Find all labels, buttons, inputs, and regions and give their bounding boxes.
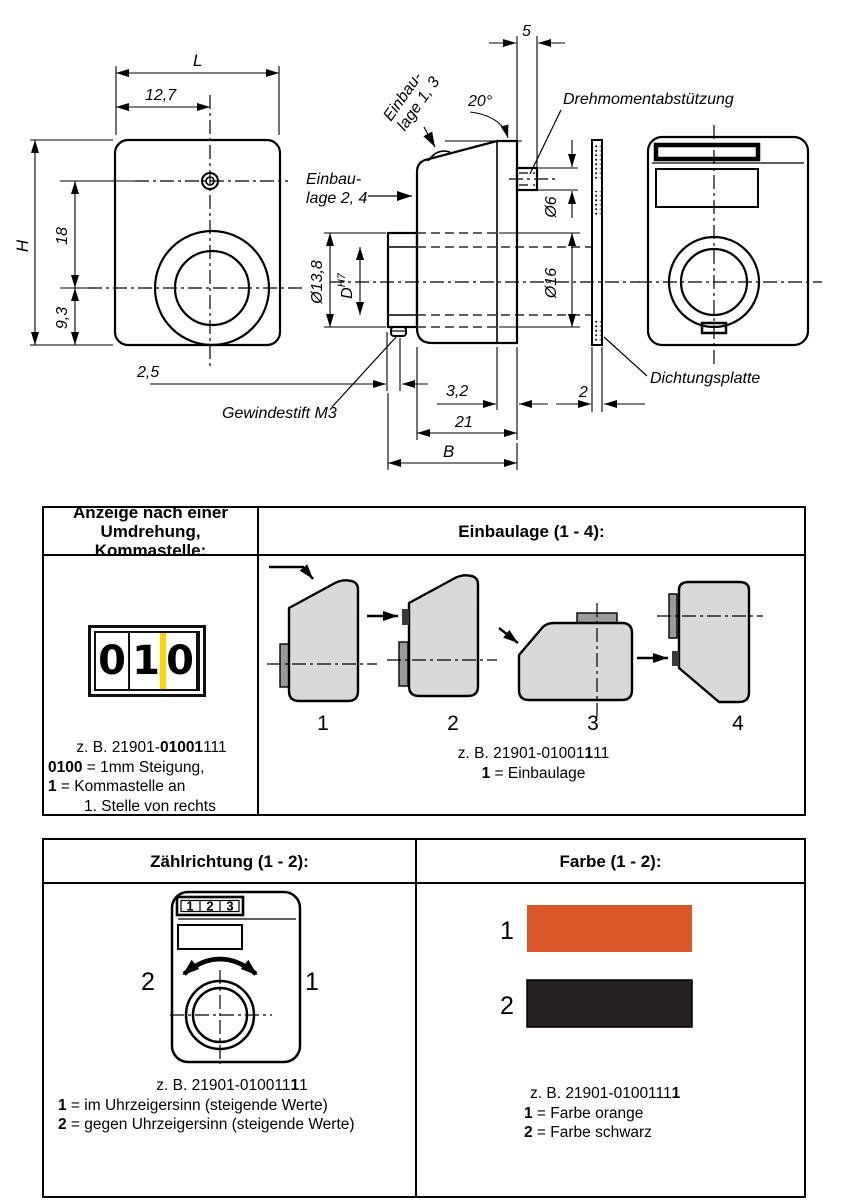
dim-2: 2 xyxy=(578,384,588,401)
dim-o6: Ø6 xyxy=(543,196,560,218)
dim-H: H xyxy=(13,239,32,252)
swatch-black xyxy=(527,980,692,1027)
direction-2: 2 xyxy=(141,968,155,996)
counter-digit: 1 xyxy=(130,633,164,689)
einbaulage-figures: 1 2 3 xyxy=(261,558,806,742)
zaehlrichtung-example-caption: z. B. 21901-01001111 1 = im Uhrzeigersin… xyxy=(58,1076,406,1135)
display-digit: 1 xyxy=(186,899,193,914)
cell-zaehlrichtung: 1 2 3 2 1 z. B. 21901-01001111 1 = im Uh… xyxy=(44,884,417,1196)
figure-position-4: 4 xyxy=(637,582,763,735)
svg-text:1: 1 xyxy=(317,712,329,735)
dim-21: 21 xyxy=(454,414,473,431)
front-view: L 12,7 H 18 9,3 xyxy=(13,51,304,368)
dim-o16: Ø16 xyxy=(543,268,560,299)
device-label-window xyxy=(178,925,242,949)
cell-anzeige: 0 1 0 z. B. 21901-01001111 0100 = 1mm St… xyxy=(44,556,259,814)
front-knob-inner xyxy=(175,251,249,325)
counter-digit: 0 xyxy=(164,633,198,689)
swatch-orange xyxy=(527,905,692,952)
dim-B: B xyxy=(443,442,454,461)
rear-view xyxy=(638,125,822,365)
dim-20deg: 20° xyxy=(467,93,493,110)
counter-digit: 0 xyxy=(96,633,130,689)
figure-position-1: 1 xyxy=(267,567,377,735)
swatch-2-number: 2 xyxy=(500,992,514,1020)
dim-D-H7: DH7 xyxy=(336,272,356,299)
table-anzeige-einbaulage: Anzeige nach einer Umdrehung, Kommastell… xyxy=(42,506,806,816)
dim-9-3: 9,3 xyxy=(54,307,71,329)
label-einbaulage-2-4: Einbau- lage 2, 4 xyxy=(306,171,367,207)
display-slot xyxy=(656,145,758,159)
counter-display: 0 1 0 xyxy=(88,625,206,697)
farbe-example-caption: z. B. 21901-01001111 1 = Farbe orange 2 … xyxy=(524,1084,774,1143)
dim-3-2: 3,2 xyxy=(446,383,468,400)
label-set-screw: Gewindestift M3 xyxy=(222,405,337,422)
einbaulage-example-caption: z. B. 21901-01001111 1 = Einbaulage xyxy=(261,744,806,783)
figure-position-2: 2 xyxy=(367,575,497,735)
svg-text:4: 4 xyxy=(732,712,744,735)
figure-position-3: 3 xyxy=(499,603,632,735)
header-einbaulage: Einbaulage (1 - 4): xyxy=(259,508,804,556)
header-anzeige-line2: Umdrehung, Kommastelle: xyxy=(44,522,257,560)
dim-o13-8: Ø13,8 xyxy=(309,260,326,305)
side-view: 5 20° Einbau- lage 1, 3 Einbau- lage 2, … xyxy=(136,23,760,470)
header-anzeige-line1: Anzeige nach einer xyxy=(44,503,257,522)
side-body xyxy=(417,141,517,343)
dim-18: 18 xyxy=(54,227,71,245)
header-zaehlrichtung: Zählrichtung (1 - 2): xyxy=(44,840,417,884)
dim-5: 5 xyxy=(522,23,531,40)
swatch-1-number: 1 xyxy=(500,917,514,945)
color-swatches: 1 2 xyxy=(419,886,808,1056)
table-zaehlrichtung-farbe: Zählrichtung (1 - 2): Farbe (1 - 2): 1 2 xyxy=(42,838,806,1198)
direction-1: 1 xyxy=(305,968,319,996)
dim-2-5: 2,5 xyxy=(136,364,159,381)
header-anzeige: Anzeige nach einer Umdrehung, Kommastell… xyxy=(44,508,259,556)
decimal-marker xyxy=(160,633,166,689)
steigung-example-caption: z. B. 21901-01001111 0100 = 1mm Steigung… xyxy=(48,738,255,816)
display-digit: 3 xyxy=(226,899,233,914)
page: L 12,7 H 18 9,3 xyxy=(0,0,846,1200)
dim-12-7: 12,7 xyxy=(145,87,177,104)
svg-text:2: 2 xyxy=(447,712,459,735)
header-farbe: Farbe (1 - 2): xyxy=(417,840,804,884)
gasket-plate xyxy=(592,140,602,345)
label-window xyxy=(656,169,758,207)
label-einbaulage-1-3: Einbau- lage 1, 3 xyxy=(380,64,443,134)
label-gasket-plate: Dichtungsplatte xyxy=(650,370,760,387)
label-torque-support: Drehmomentabstützung xyxy=(563,91,734,108)
svg-text:3: 3 xyxy=(587,712,599,735)
cell-farbe: 1 2 z. B. 21901-01001111 1 = Farbe orang… xyxy=(419,886,804,1196)
direction-figure: 1 2 3 2 1 xyxy=(44,886,417,1072)
display-digit: 2 xyxy=(206,899,213,914)
technical-drawing: L 12,7 H 18 9,3 xyxy=(0,0,846,500)
dim-L: L xyxy=(193,51,202,70)
front-body xyxy=(115,140,280,345)
